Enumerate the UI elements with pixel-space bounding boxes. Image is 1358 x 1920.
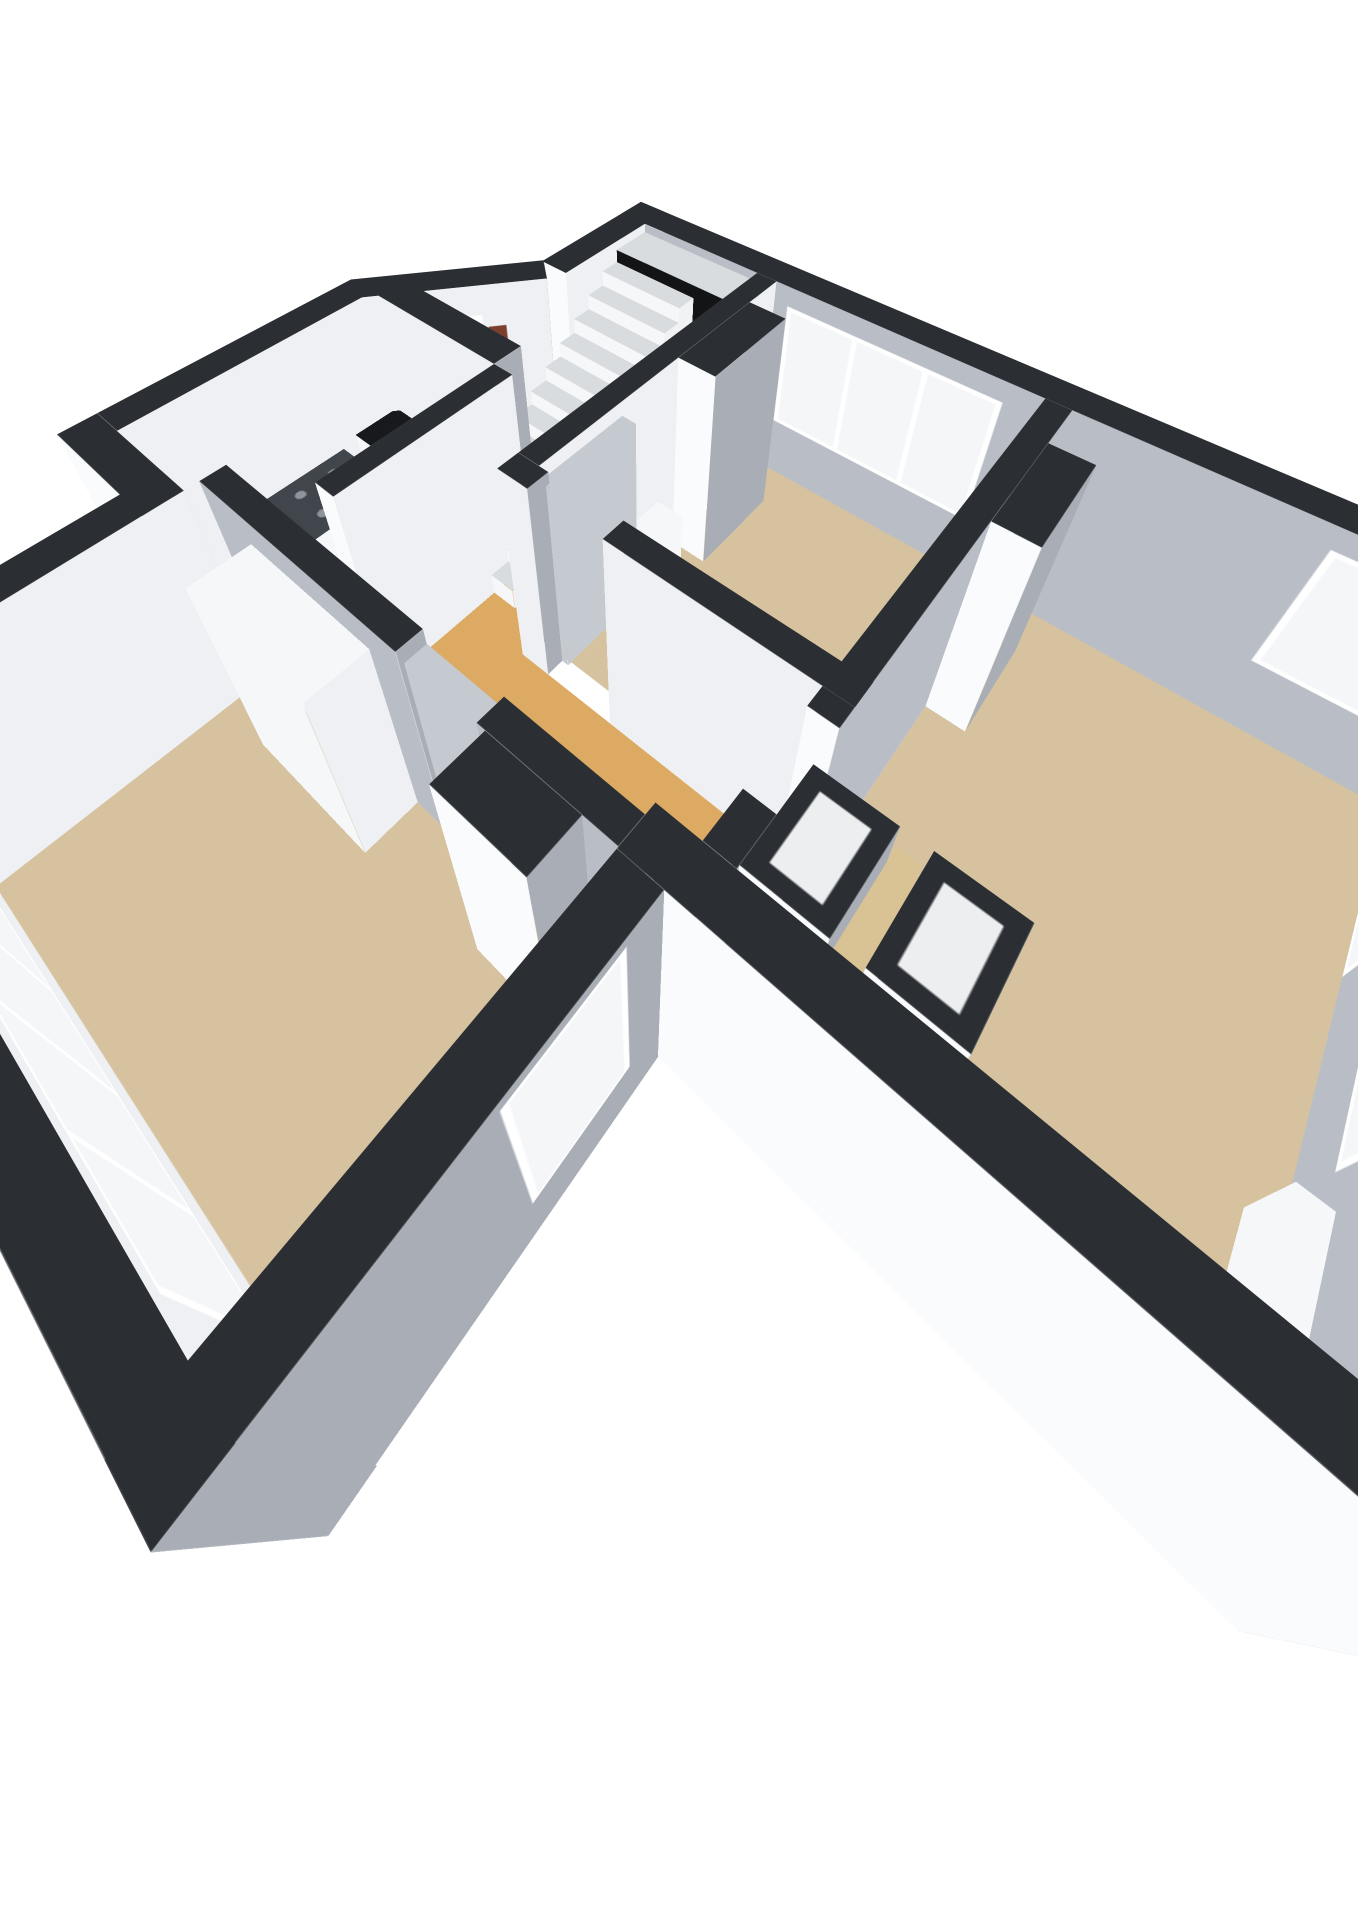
floorplan-screenshot bbox=[0, 0, 1358, 1920]
wall-north-pane-2 bbox=[1251, 550, 1358, 748]
floorplan-3d-view bbox=[0, 0, 1358, 1920]
floorplan-model bbox=[0, 338, 1358, 1920]
wall-east-right-room-face-s bbox=[1172, 1565, 1358, 1705]
wall-north-pane-1 bbox=[774, 306, 1003, 520]
